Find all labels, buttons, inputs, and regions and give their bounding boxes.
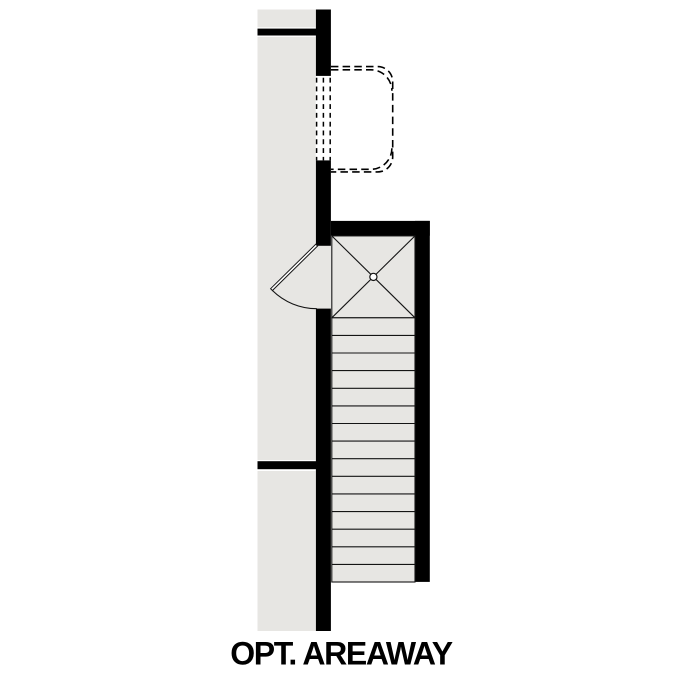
svg-text:OPT. AREAWAY: OPT. AREAWAY	[230, 635, 452, 671]
